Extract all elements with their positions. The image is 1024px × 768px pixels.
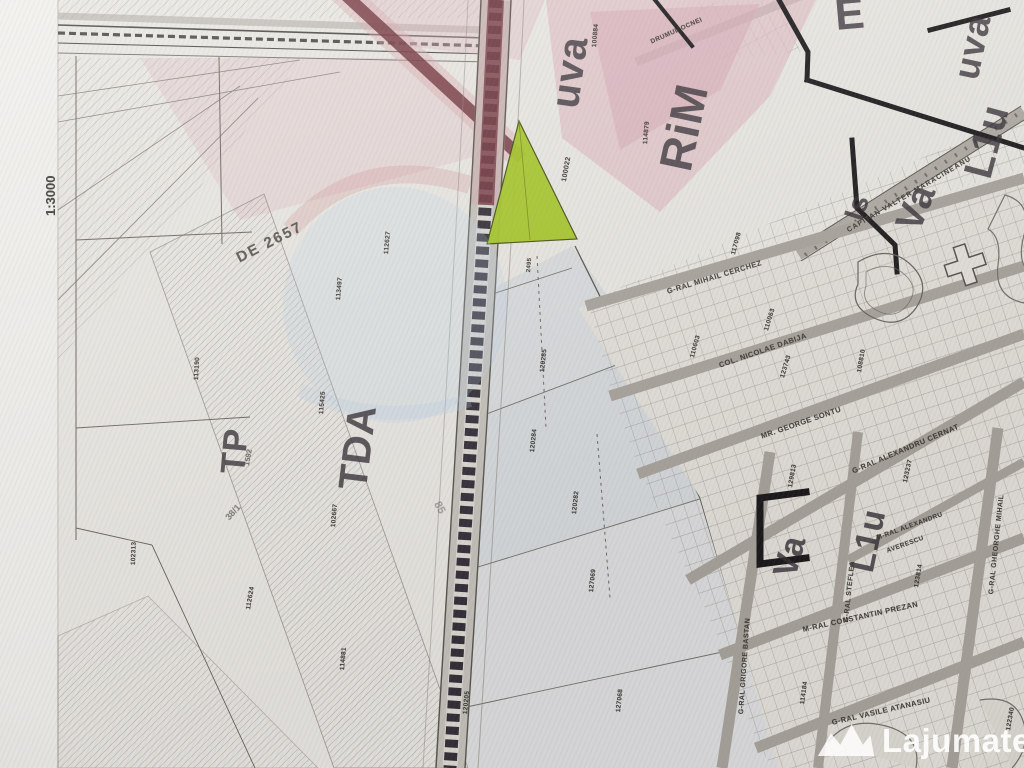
street-name-bastan: G-RAL GRIGORE BASTAN [738, 618, 752, 715]
map-labels: 1:3000 RiM E Is Va L1u uva uva TP TDA Va… [0, 0, 1024, 768]
parcel-number: 117098 [731, 232, 743, 256]
parcel-number: 100884 [592, 24, 601, 48]
zone-label-va-bottom: Va [768, 532, 812, 581]
parcel-number: 112624 [246, 586, 256, 610]
parcel-number: 123743 [780, 355, 793, 379]
street-name-ocnei: DRUMUL OCNEI [650, 17, 704, 46]
street-name-prezan: M-RAL CONSTANTIN PREZAN [802, 600, 919, 633]
parcel-number: 114184 [800, 681, 810, 705]
parcel-number: 100022 [561, 156, 572, 182]
zone-label-l1u-top: L1u [958, 100, 1016, 182]
street-name-gheorghe-mihail: G-RAL GHEORGHE MIHAIL [988, 494, 1005, 595]
zone-label-uva-corner: uva [948, 11, 997, 82]
parcel-number: 120284 [530, 429, 539, 453]
mountain-w-logo-icon [816, 722, 876, 760]
street-name-averescu-line2: AVERESCU [886, 536, 925, 556]
parcel-number: 127069 [589, 569, 598, 593]
zone-label-e: E [833, 0, 867, 38]
parcel-number: 115425 [319, 391, 327, 415]
parcel-number: 127068 [616, 689, 625, 713]
parcel-number: 114881 [340, 647, 348, 671]
parcel-number: 113190 [194, 357, 202, 380]
parcel-number: 2495 [526, 257, 533, 272]
parcel-number: 120205 [463, 691, 472, 715]
zone-label-rim: RiM [652, 80, 715, 175]
street-name-dabija: COL. NICOLAE DABIJA [718, 332, 808, 369]
watermark: Lajumate .ro [816, 722, 1024, 760]
map-scale-label: 1:3000 [44, 176, 57, 216]
zone-label-tda: TDA [333, 402, 383, 491]
parcel-number: 123814 [914, 564, 924, 588]
parcel-number: 112627 [384, 231, 392, 255]
parcel-number: 102667 [331, 504, 340, 528]
zone-label-uva-top: uva [545, 34, 595, 111]
parcel-number: 114879 [643, 121, 651, 145]
road-label-85: 85 [431, 500, 446, 516]
parcel-number: 110063 [764, 308, 777, 332]
parcel-number: 110603 [690, 335, 702, 359]
street-name-cerchez: G-RAL MIHAIL CERCHEZ [666, 259, 763, 295]
road-label-de2657: DE 2657 [234, 219, 305, 265]
street-name-sontu: MR. GEORGE SONTU [760, 406, 842, 441]
parcel-number: 123237 [903, 459, 914, 483]
parcel-number: 108810 [857, 349, 867, 373]
parcel-number: 120282 [572, 491, 581, 515]
watermark-name: Lajumate [882, 722, 1024, 760]
road-label-38-1: 38/1 [224, 503, 242, 522]
parcel-number: 102313 [131, 542, 138, 566]
parcel-number: 120285 [540, 349, 549, 373]
parcel-number: 129813 [788, 464, 798, 488]
cadastral-map-photo: 1:3000 RiM E Is Va L1u uva uva TP TDA Va… [0, 0, 1024, 768]
parcel-number: 113497 [336, 277, 344, 301]
